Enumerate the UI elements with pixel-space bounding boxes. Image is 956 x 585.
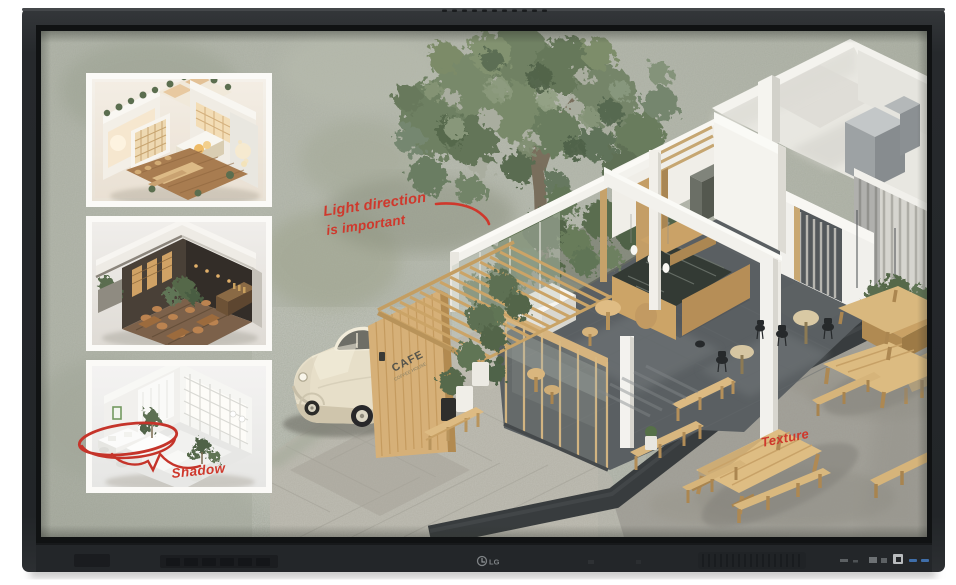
svg-text:LG: LG <box>489 558 500 567</box>
